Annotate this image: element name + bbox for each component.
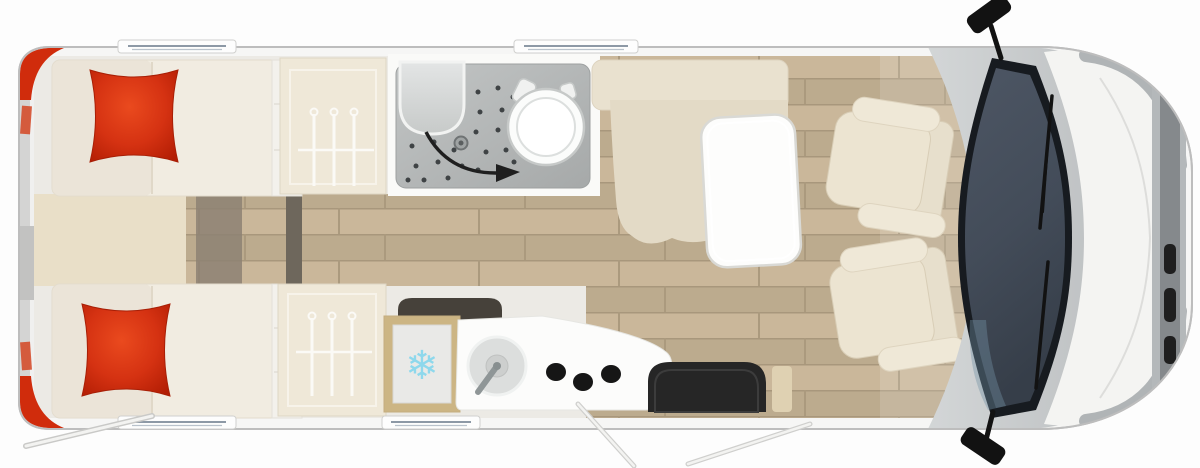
tail-accent-top-sliver (20, 106, 32, 135)
window-frame (514, 40, 638, 53)
rear-platform (34, 194, 186, 286)
side-mirror-icon (958, 425, 1007, 467)
wardrobe-top (280, 58, 386, 194)
fridge: ❄ (384, 316, 460, 412)
rear-wall-center (20, 226, 34, 300)
side-mirror-icon (965, 0, 1014, 36)
front-grille (1152, 70, 1186, 406)
bed-rear-top (52, 60, 302, 196)
burner-icon (546, 363, 566, 381)
burner-icon (573, 373, 593, 391)
snowflake-icon: ❄ (405, 343, 439, 389)
bathroom-sink (400, 62, 464, 134)
step-edge (286, 194, 302, 286)
entry-pillar (772, 366, 792, 412)
pillow-bottom (82, 304, 170, 396)
toilet-icon (508, 77, 584, 165)
dinette-table (700, 114, 802, 269)
tail-accent-bottom-sliver (20, 342, 32, 371)
pillow-top (90, 70, 178, 162)
bathroom (388, 54, 600, 196)
motorhome-floorplan: ❄ (0, 0, 1200, 468)
step-edge (196, 194, 242, 286)
burner-icon (601, 365, 621, 383)
shower-drain-icon (455, 137, 468, 150)
window-frame (382, 416, 480, 429)
window-frame (118, 40, 236, 53)
kitchen-sink (468, 337, 526, 395)
corridor-wood-floor (186, 194, 590, 286)
floorplan-canvas: ❄ (0, 0, 1200, 468)
